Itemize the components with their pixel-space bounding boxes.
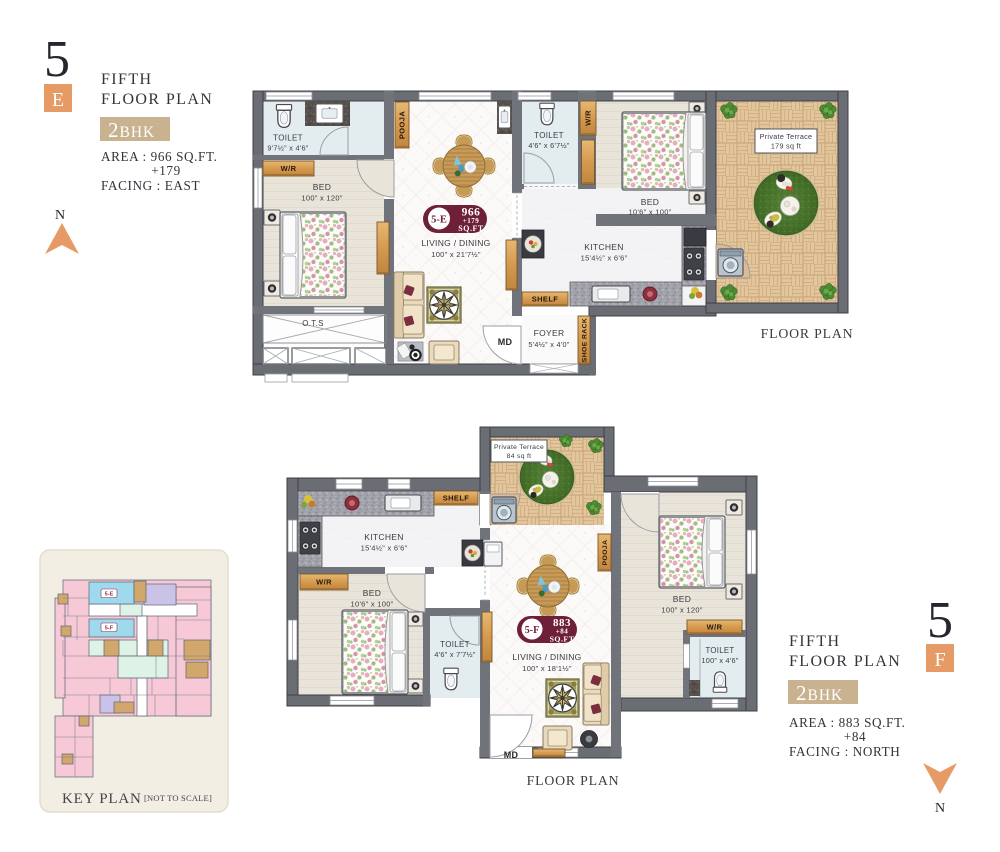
svg-text:BED: BED xyxy=(673,594,691,604)
svg-text:100” x 4'6”: 100” x 4'6” xyxy=(701,656,738,665)
svg-text:FLOOR PLAN: FLOOR PLAN xyxy=(761,326,854,341)
svg-text:BED: BED xyxy=(363,588,381,598)
svg-text:KITCHEN: KITCHEN xyxy=(584,242,623,252)
svg-text:W/R: W/R xyxy=(584,110,593,126)
svg-text:F: F xyxy=(934,649,945,671)
svg-text:100” x 18'1½”: 100” x 18'1½” xyxy=(522,664,572,673)
svg-text:5-F: 5-F xyxy=(525,625,539,636)
svg-text:+179: +179 xyxy=(151,163,181,178)
svg-text:KEY PLAN: KEY PLAN xyxy=(62,791,142,807)
svg-text:5-F: 5-F xyxy=(105,626,114,632)
svg-text:10'6” x 100”: 10'6” x 100” xyxy=(351,600,394,609)
svg-text:FACING : NORTH: FACING : NORTH xyxy=(789,744,900,759)
svg-text:POOJA: POOJA xyxy=(398,111,407,139)
svg-text:N: N xyxy=(935,801,945,816)
svg-text:TOILET: TOILET xyxy=(273,134,303,143)
svg-text:FLOOR PLAN: FLOOR PLAN xyxy=(527,773,620,788)
svg-text:100” x 120”: 100” x 120” xyxy=(661,606,702,615)
svg-text:84 sq ft: 84 sq ft xyxy=(507,453,532,460)
svg-text:AREA : 966 SQ.FT.: AREA : 966 SQ.FT. xyxy=(101,149,218,164)
svg-text:LIVING / DINING: LIVING / DINING xyxy=(512,652,581,662)
svg-text:4'6” x 7'7½”: 4'6” x 7'7½” xyxy=(434,650,476,659)
svg-text:FLOOR PLAN: FLOOR PLAN xyxy=(101,91,213,108)
svg-text:FLOOR PLAN: FLOOR PLAN xyxy=(789,653,901,670)
svg-text:5'4½” x 4'0”: 5'4½” x 4'0” xyxy=(528,340,570,349)
svg-text:KITCHEN: KITCHEN xyxy=(364,532,403,542)
svg-text:[NOT TO SCALE]: [NOT TO SCALE] xyxy=(144,793,212,803)
svg-text:AREA : 883 SQ.FT.: AREA : 883 SQ.FT. xyxy=(789,715,906,730)
svg-text:9'7½” x 4'6”: 9'7½” x 4'6” xyxy=(267,144,309,153)
svg-text:MD: MD xyxy=(498,337,513,347)
svg-text:E: E xyxy=(52,89,64,111)
svg-text:15'4½” x 6'6”: 15'4½” x 6'6” xyxy=(581,254,628,263)
svg-text:MD: MD xyxy=(504,750,519,760)
svg-text:BED: BED xyxy=(313,182,331,192)
svg-text:N: N xyxy=(55,208,65,223)
svg-text:5: 5 xyxy=(44,31,70,88)
svg-text:FOYER: FOYER xyxy=(534,328,565,338)
svg-text:179 sq ft: 179 sq ft xyxy=(771,142,801,151)
svg-text:FACING : EAST: FACING : EAST xyxy=(101,178,200,193)
svg-text:5-E: 5-E xyxy=(431,215,447,226)
svg-text:O.T.S: O.T.S xyxy=(302,319,324,328)
svg-text:TOILET: TOILET xyxy=(440,640,470,649)
svg-text:W/R: W/R xyxy=(316,578,332,587)
svg-text:SHELF: SHELF xyxy=(532,295,559,304)
svg-text:5-E: 5-E xyxy=(105,592,114,598)
svg-text:15'4½” x 6'6”: 15'4½” x 6'6” xyxy=(361,544,408,553)
svg-text:SQ.FT: SQ.FT xyxy=(550,635,575,644)
svg-text:LIVING / DINING: LIVING / DINING xyxy=(421,238,490,248)
svg-text:POOJA: POOJA xyxy=(602,540,609,566)
svg-text:100” x 120”: 100” x 120” xyxy=(301,194,342,203)
svg-text:TOILET: TOILET xyxy=(534,131,564,140)
svg-text:TOILET: TOILET xyxy=(706,646,735,655)
svg-text:FIFTH: FIFTH xyxy=(101,71,152,88)
svg-text:5: 5 xyxy=(927,592,953,649)
svg-text:SQ.FT: SQ.FT xyxy=(458,224,484,233)
svg-text:W/R: W/R xyxy=(707,623,723,632)
svg-text:10'6” x 100”: 10'6” x 100” xyxy=(629,208,672,217)
svg-text:Private Terrace: Private Terrace xyxy=(494,444,544,451)
svg-text:4'6” x 6'7½”: 4'6” x 6'7½” xyxy=(528,141,570,150)
svg-text:SHELF: SHELF xyxy=(443,494,470,503)
svg-text:FIFTH: FIFTH xyxy=(789,633,840,650)
svg-text:W/R: W/R xyxy=(281,164,297,173)
svg-text:+84: +84 xyxy=(844,729,866,744)
svg-text:100” x 21'7½”: 100” x 21'7½” xyxy=(431,250,481,259)
svg-text:BED: BED xyxy=(641,197,659,207)
svg-text:SHOE RACK: SHOE RACK xyxy=(582,318,589,362)
svg-text:Private Terrace: Private Terrace xyxy=(760,132,813,141)
